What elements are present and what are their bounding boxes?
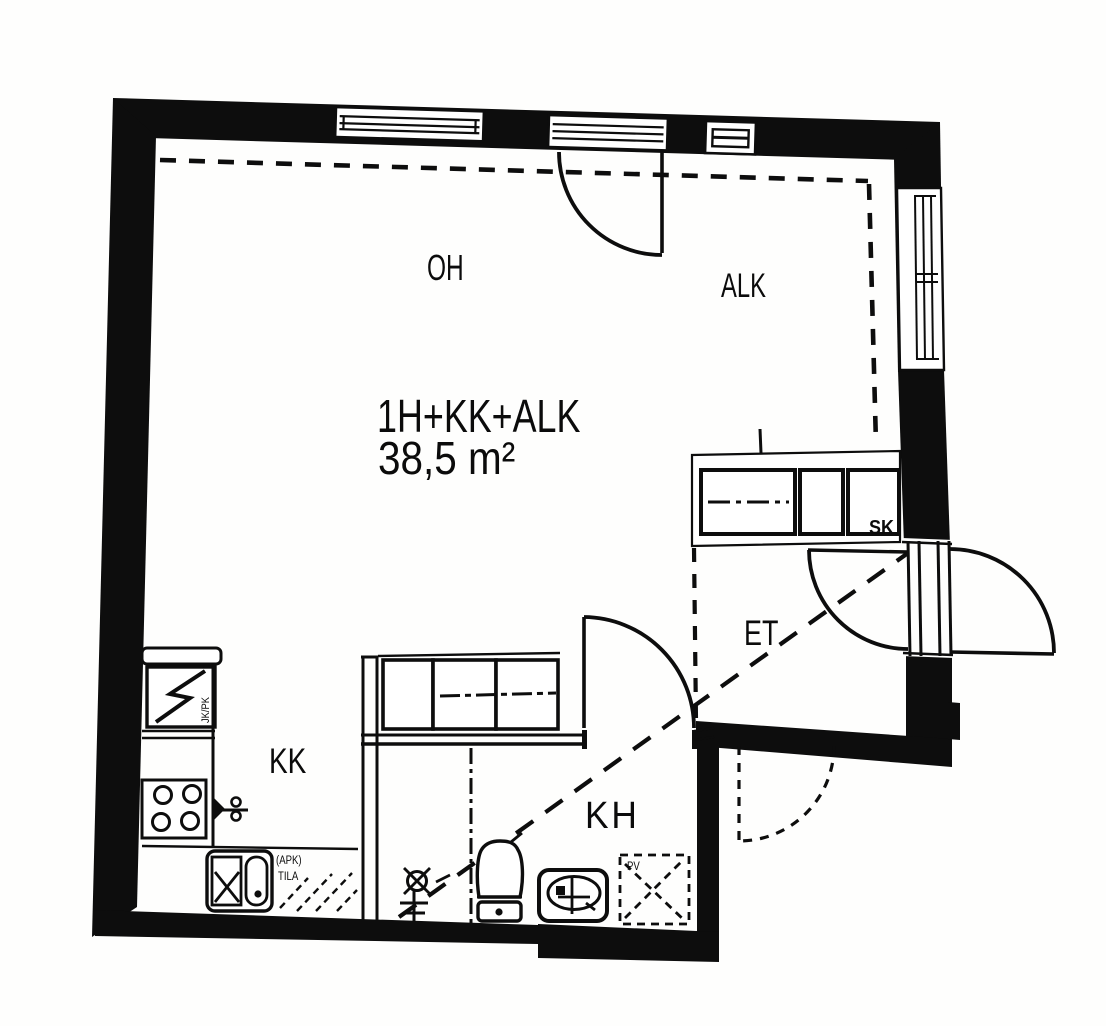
svg-text:TILA: TILA xyxy=(278,870,299,883)
svg-text:(APK): (APK) xyxy=(276,854,302,867)
svg-text:JK/PK: JK/PK xyxy=(200,697,212,723)
svg-text:OH: OH xyxy=(427,247,464,288)
svg-text:38,5 m²: 38,5 m² xyxy=(378,434,515,485)
svg-text:SK: SK xyxy=(869,517,894,539)
svg-text:ET: ET xyxy=(744,614,778,653)
svg-text:ALK: ALK xyxy=(721,267,766,305)
svg-text:KH: KH xyxy=(585,794,640,836)
svg-text:KK: KK xyxy=(269,741,306,781)
svg-text:PV: PV xyxy=(627,860,640,873)
